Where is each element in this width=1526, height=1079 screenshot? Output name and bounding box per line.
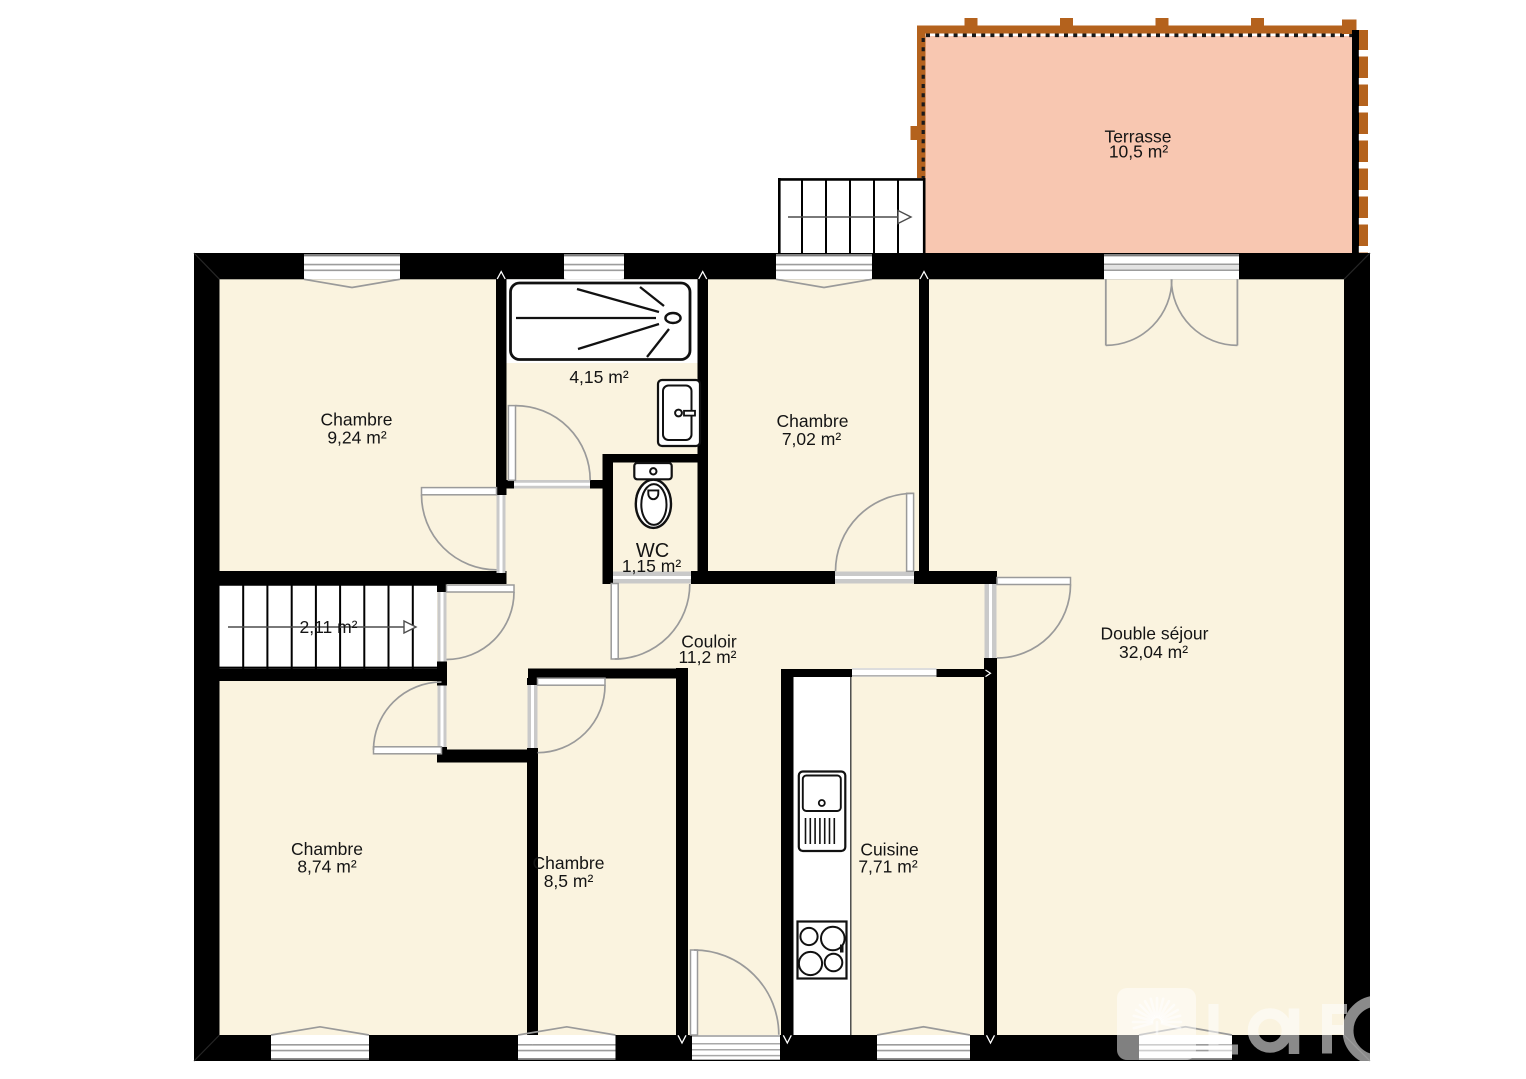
svg-text:4,15 m²: 4,15 m²	[569, 367, 628, 387]
svg-text:8,74 m²: 8,74 m²	[297, 857, 356, 877]
svg-text:8,5 m²: 8,5 m²	[544, 871, 594, 891]
svg-text:7,71 m²: 7,71 m²	[858, 857, 917, 877]
svg-text:Chambre: Chambre	[533, 853, 605, 873]
svg-text:10,5 m²: 10,5 m²	[1109, 142, 1168, 162]
svg-text:7,02 m²: 7,02 m²	[782, 429, 841, 449]
svg-text:11,2 m²: 11,2 m²	[678, 647, 736, 667]
svg-text:32,04 m²: 32,04 m²	[1119, 642, 1188, 662]
svg-text:Double séjour: Double séjour	[1101, 624, 1209, 644]
svg-text:1,15 m²: 1,15 m²	[622, 556, 681, 576]
svg-text:9,24 m²: 9,24 m²	[327, 427, 386, 447]
svg-text:2,11 m²: 2,11 m²	[299, 617, 357, 637]
